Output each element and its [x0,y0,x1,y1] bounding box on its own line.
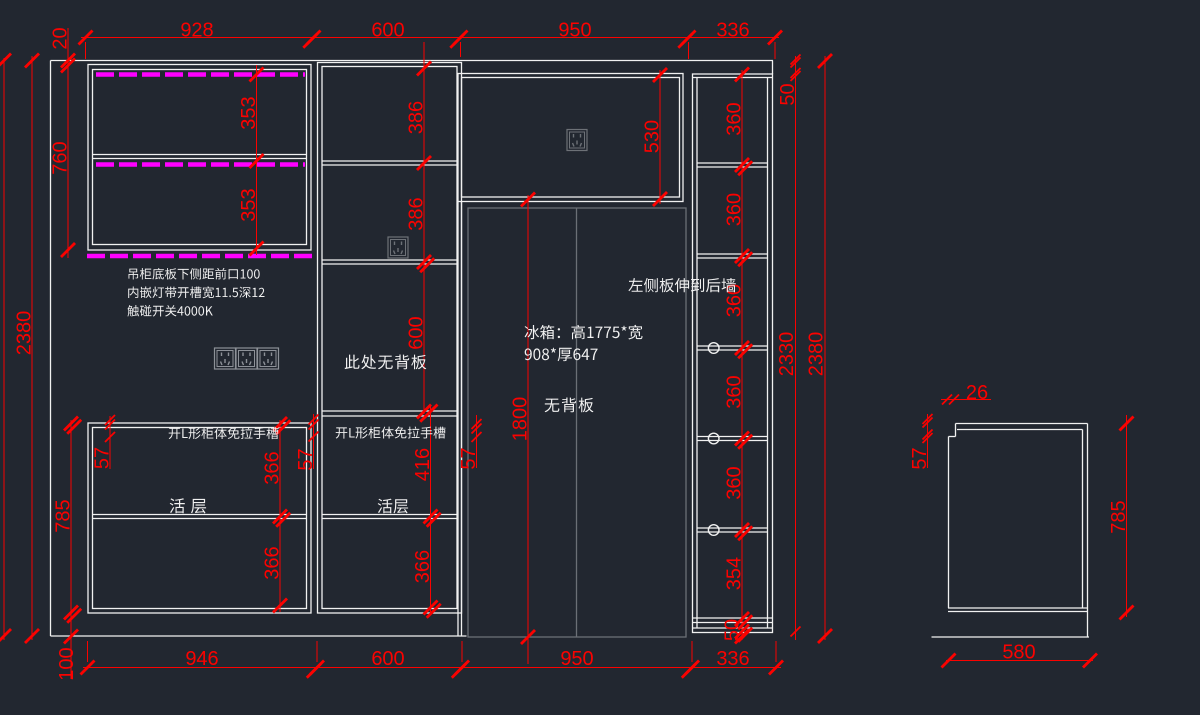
svg-text:366: 366 [262,451,284,484]
svg-text:360: 360 [724,193,746,226]
svg-text:57: 57 [458,447,480,469]
svg-text:928: 928 [180,20,213,42]
svg-text:1800: 1800 [510,397,532,442]
svg-text:354: 354 [724,557,746,590]
svg-text:946: 946 [185,648,218,670]
svg-text:360: 360 [724,375,746,408]
svg-text:100: 100 [56,647,78,680]
svg-text:353: 353 [238,188,260,221]
svg-text:600: 600 [406,316,428,349]
svg-text:386: 386 [406,101,428,134]
svg-text:57: 57 [295,448,317,470]
svg-text:386: 386 [406,197,428,230]
svg-text:366: 366 [412,550,434,583]
svg-text:26: 26 [966,382,988,404]
svg-text:580: 580 [1002,642,1035,664]
svg-text:366: 366 [262,546,284,579]
svg-text:785: 785 [1108,500,1130,533]
svg-text:600: 600 [371,20,404,42]
svg-text:360: 360 [724,102,746,135]
svg-text:353: 353 [238,96,260,129]
svg-text:336: 336 [716,648,749,670]
svg-text:50: 50 [722,619,744,641]
svg-text:20: 20 [50,27,72,49]
svg-text:360: 360 [724,466,746,499]
svg-text:600: 600 [371,648,404,670]
svg-text:2330: 2330 [776,332,798,377]
svg-text:57: 57 [92,447,114,469]
svg-text:950: 950 [558,20,591,42]
svg-text:785: 785 [53,499,75,532]
svg-text:760: 760 [50,141,72,174]
svg-text:530: 530 [642,120,664,153]
svg-text:416: 416 [412,448,434,481]
svg-text:57: 57 [909,447,931,469]
svg-text:2380: 2380 [806,332,828,377]
svg-text:336: 336 [716,20,749,42]
svg-text:2380: 2380 [14,311,36,356]
svg-text:950: 950 [560,648,593,670]
svg-text:50: 50 [777,83,799,105]
